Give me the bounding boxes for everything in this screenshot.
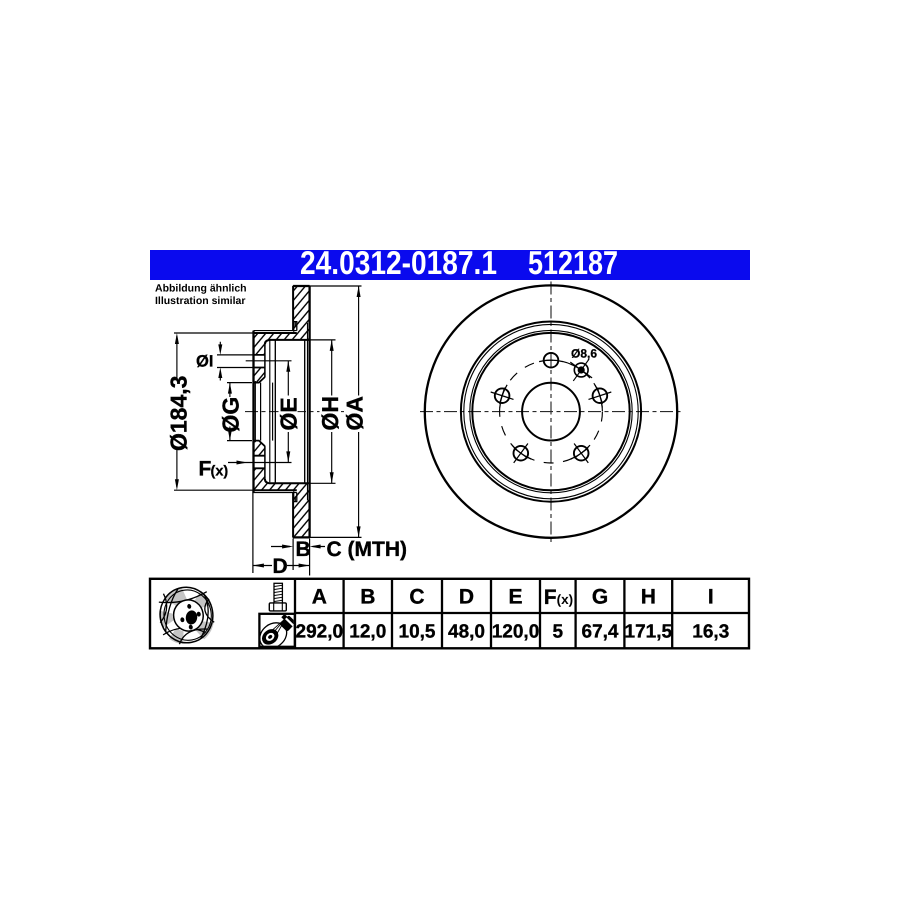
- svg-text:E: E: [508, 585, 522, 608]
- svg-text:67,4: 67,4: [582, 622, 619, 643]
- svg-text:D: D: [459, 585, 474, 608]
- svg-text:292,0: 292,0: [296, 622, 344, 643]
- svg-text:10,5: 10,5: [399, 622, 436, 643]
- svg-text:ØE: ØE: [276, 397, 302, 430]
- svg-text:5: 5: [553, 622, 564, 643]
- svg-text:120,0: 120,0: [492, 622, 540, 643]
- svg-text:12,0: 12,0: [349, 622, 386, 643]
- svg-text:B: B: [360, 585, 375, 608]
- svg-text:48,0: 48,0: [448, 622, 485, 643]
- svg-text:ØH: ØH: [317, 396, 343, 431]
- svg-text:ØI: ØI: [196, 352, 213, 370]
- svg-text:Ø184,3: Ø184,3: [166, 376, 192, 451]
- svg-text:24.0312-0187.1: 24.0312-0187.1: [300, 244, 497, 281]
- svg-text:A: A: [312, 585, 327, 608]
- svg-text:Abbildung ähnlich: Abbildung ähnlich: [155, 283, 247, 295]
- svg-text:ØG: ØG: [217, 397, 243, 433]
- svg-text:Ø8,6: Ø8,6: [571, 347, 597, 361]
- svg-text:H: H: [641, 585, 656, 608]
- svg-text:F: F: [544, 586, 557, 609]
- svg-text:ØA: ØA: [341, 396, 367, 431]
- svg-text:16,3: 16,3: [692, 622, 729, 643]
- svg-text:G: G: [592, 585, 608, 608]
- svg-text:512187: 512187: [528, 244, 618, 281]
- svg-text:C: C: [409, 585, 424, 608]
- svg-text:(x): (x): [211, 464, 229, 480]
- svg-text:C (MTH): C (MTH): [327, 538, 407, 561]
- svg-text:Illustration similar: Illustration similar: [155, 295, 245, 307]
- svg-text:171,5: 171,5: [625, 622, 673, 643]
- svg-text:D: D: [273, 555, 288, 578]
- svg-text:I: I: [708, 585, 714, 608]
- svg-text:(x): (x): [557, 592, 574, 607]
- svg-text:B: B: [296, 538, 311, 561]
